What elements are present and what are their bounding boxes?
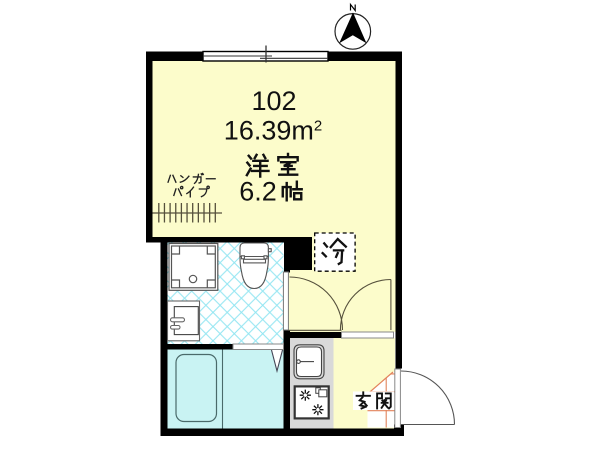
svg-text:16.39m2: 16.39m2 [224,116,322,146]
svg-text:102: 102 [251,86,296,116]
svg-text:6.2: 6.2 [239,177,277,207]
